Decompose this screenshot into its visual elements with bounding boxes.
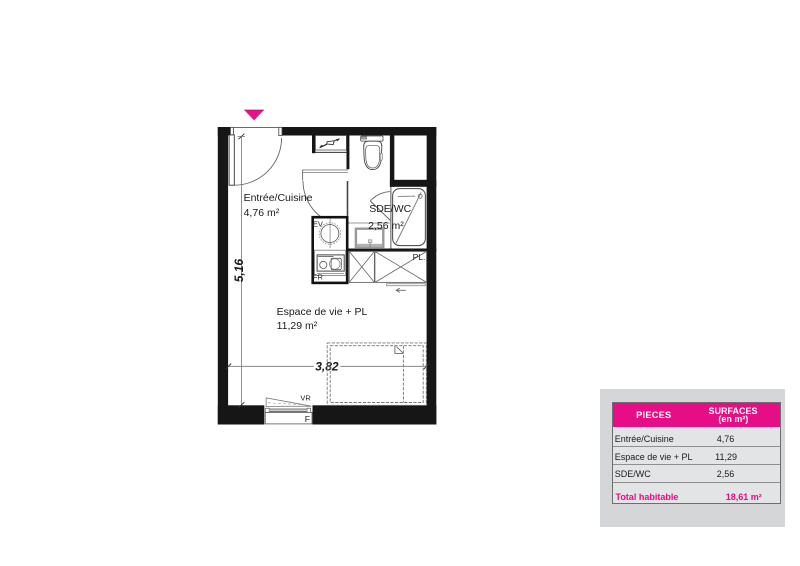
- svg-text:Entrée/Cuisine: Entrée/Cuisine: [244, 192, 313, 204]
- svg-text:5,16: 5,16: [232, 259, 246, 283]
- svg-text:FR: FR: [313, 272, 324, 281]
- svg-text:PL.: PL.: [413, 252, 426, 262]
- svg-text:2,56 m²: 2,56 m²: [368, 220, 404, 232]
- svg-text:11,29 m²: 11,29 m²: [277, 320, 318, 332]
- svg-text:Espace de vie + PL: Espace de vie + PL: [277, 306, 368, 318]
- svg-text:F: F: [305, 414, 310, 424]
- svg-text:SDE/WC: SDE/WC: [369, 203, 411, 215]
- svg-text:4,76 m²: 4,76 m²: [244, 207, 280, 219]
- svg-text:VR: VR: [300, 394, 311, 403]
- svg-text:EV: EV: [313, 219, 323, 228]
